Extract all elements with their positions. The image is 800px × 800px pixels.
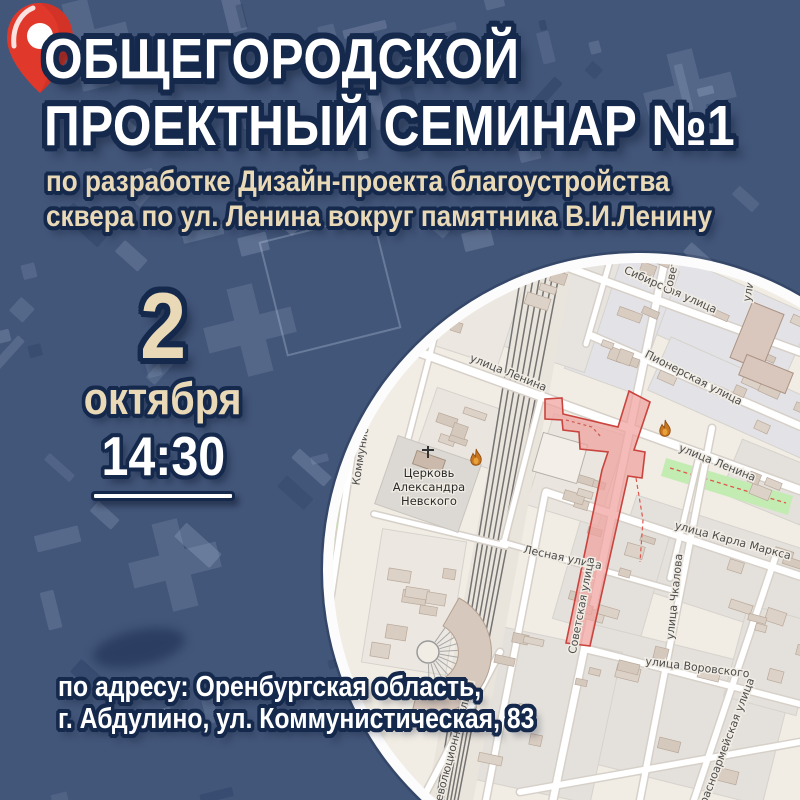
subtitle-line1: по разработке Дизайн-проекта благоустрой… bbox=[46, 164, 670, 199]
poster-subtitle: по разработке Дизайн-проекта благоустрой… bbox=[46, 164, 800, 234]
subtitle-line2: сквера по ул. Ленина вокруг памятника В.… bbox=[46, 199, 712, 234]
event-month: октября bbox=[84, 374, 242, 424]
event-datetime: 2 октября 14:30 bbox=[56, 282, 270, 501]
event-address: по адресу: Оренбургская область, г. Абду… bbox=[58, 671, 606, 735]
event-time: 14:30 bbox=[101, 428, 225, 484]
seminar-poster: Сибирская улицаСоветскулиулица ЛенинаПио… bbox=[0, 0, 800, 800]
title-line2: ПРОЕКТНЫЙ СЕМИНАР №1 bbox=[44, 93, 735, 160]
event-day: 2 bbox=[140, 282, 186, 370]
church-label: Церковь bbox=[404, 466, 455, 480]
title-line1: ОБЩЕГОРОДСКОЙ bbox=[44, 26, 519, 93]
address-line1: по адресу: Оренбургская область, bbox=[58, 671, 481, 703]
church-label: Невского bbox=[401, 494, 457, 508]
address-line2: г. Абдулино, ул. Коммунистическая, 83 bbox=[58, 703, 534, 735]
poster-title: ОБЩЕГОРОДСКОЙ ПРОЕКТНЫЙ СЕМИНАР №1 bbox=[44, 26, 800, 160]
church-label: Александра bbox=[393, 480, 465, 494]
time-underline bbox=[91, 491, 235, 501]
